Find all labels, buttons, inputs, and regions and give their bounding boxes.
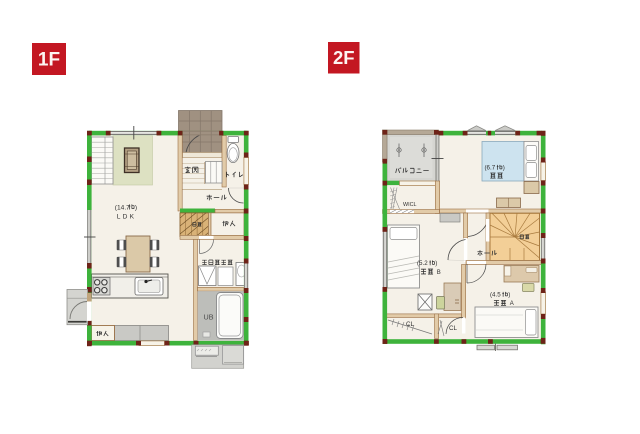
- svg-text:(6.7: (6.7: [485, 165, 496, 172]
- svg-text:2F: 2F: [333, 47, 355, 68]
- svg-text:A: A: [510, 301, 514, 307]
- svg-text:UB: UB: [204, 313, 214, 322]
- svg-text:CL: CL: [406, 321, 415, 328]
- svg-text:): ): [503, 165, 505, 172]
- svg-text:(5.2: (5.2: [417, 260, 428, 267]
- svg-text:1F: 1F: [38, 50, 60, 71]
- svg-text:B: B: [437, 270, 441, 276]
- svg-text:): ): [508, 292, 510, 299]
- svg-text:CL: CL: [449, 325, 458, 332]
- svg-text:(4.5: (4.5: [490, 292, 501, 299]
- svg-text:LDK: LDK: [117, 213, 136, 220]
- svg-text:): ): [435, 260, 437, 267]
- svg-text:(14.7: (14.7: [115, 204, 130, 211]
- svg-text:WICL: WICL: [403, 202, 416, 208]
- svg-text:): ): [135, 204, 137, 211]
